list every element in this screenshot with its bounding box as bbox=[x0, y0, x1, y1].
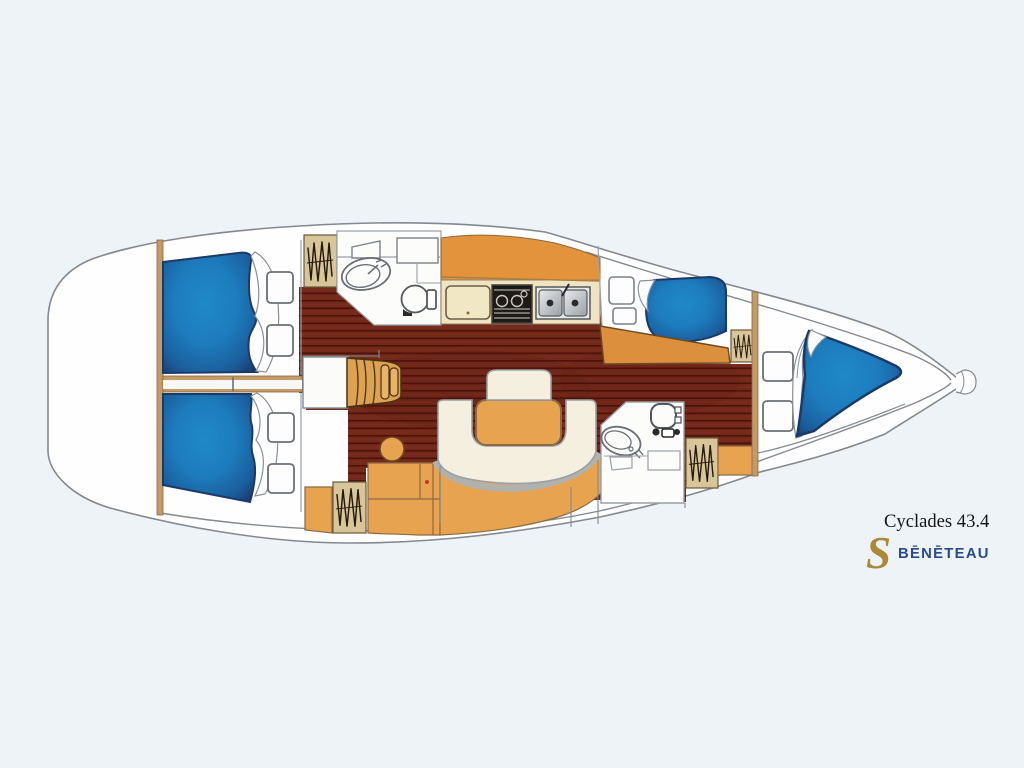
svg-text:S: S bbox=[866, 528, 891, 578]
svg-text:Cyclades 43.4: Cyclades 43.4 bbox=[884, 511, 989, 532]
svg-text:BĒNĒTEAU: BĒNĒTEAU bbox=[898, 546, 990, 562]
